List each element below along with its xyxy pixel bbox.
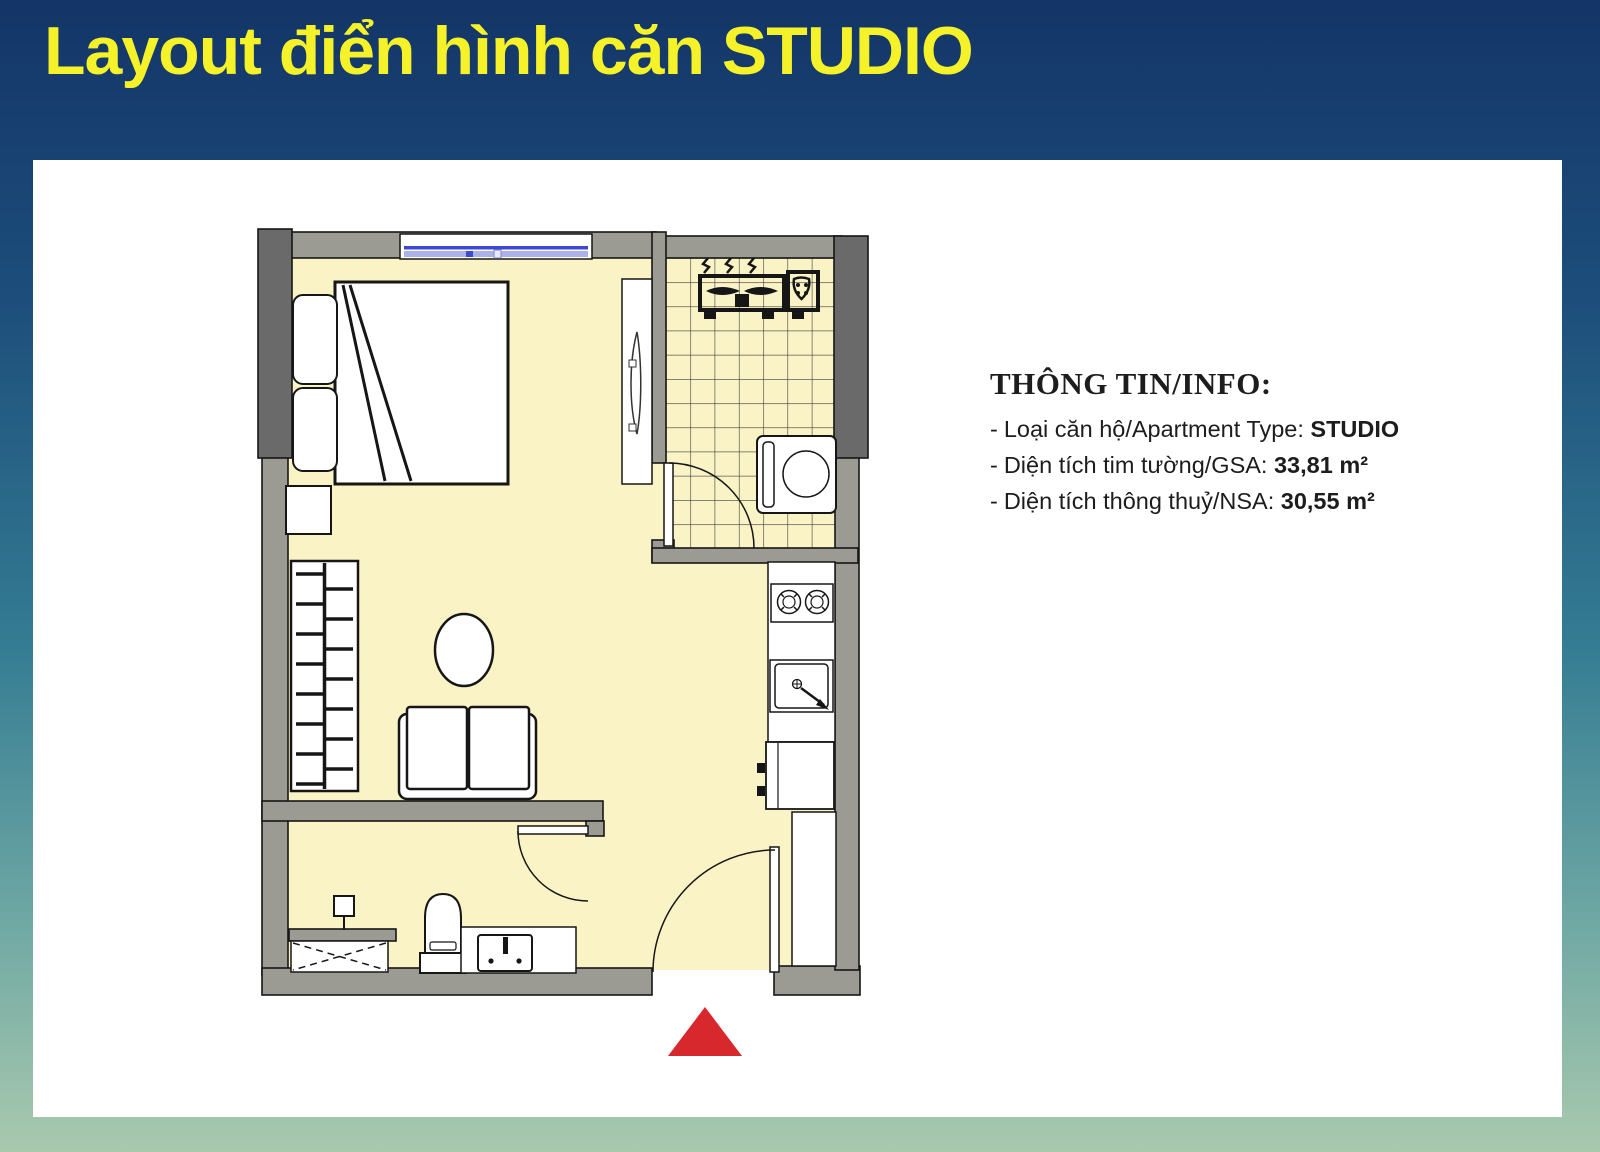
- tv-cabinet: [622, 279, 652, 484]
- round-table: [435, 614, 493, 686]
- sofa: [399, 707, 536, 799]
- entrance-arrow: [668, 1007, 742, 1056]
- bullet-dash: -: [990, 416, 998, 442]
- wardrobe-hangers: [291, 561, 358, 791]
- info-line-apartment-type: -Loại căn hộ/Apartment Type: STUDIO: [990, 411, 1399, 447]
- content-card: THÔNG TIN/INFO: -Loại căn hộ/Apartment T…: [33, 160, 1562, 1117]
- pillow: [293, 295, 337, 384]
- info-value: 30,55 m²: [1281, 488, 1375, 514]
- slide: Layout điển hình căn STUDIO: [0, 0, 1600, 1152]
- refrigerator: [757, 742, 834, 809]
- stove-2-burner: [771, 584, 833, 622]
- info-label: Diện tích thông thuỷ/NSA:: [1004, 488, 1281, 514]
- info-heading: THÔNG TIN/INFO:: [990, 366, 1399, 402]
- shower-head: [334, 896, 354, 916]
- info-label: Loại căn hộ/Apartment Type:: [1004, 416, 1311, 442]
- page-title: Layout điển hình căn STUDIO: [44, 12, 973, 90]
- info-line-gsa: -Diện tích tim tường/GSA: 33,81 m²: [990, 447, 1399, 483]
- info-panel: THÔNG TIN/INFO: -Loại căn hộ/Apartment T…: [990, 366, 1399, 519]
- nightstand: [286, 486, 331, 534]
- bullet-dash: -: [990, 452, 998, 478]
- info-value: STUDIO: [1310, 416, 1399, 442]
- kitchen-counter: [768, 562, 835, 742]
- bullet-dash: -: [990, 488, 998, 514]
- vanity-sink: [461, 927, 576, 973]
- info-label: Diện tích tim tường/GSA:: [1004, 452, 1274, 478]
- floor-plan: [250, 225, 890, 1065]
- info-value: 33,81 m²: [1274, 452, 1368, 478]
- washing-machine: [757, 436, 836, 513]
- window: [400, 234, 592, 259]
- entry-cabinet: [792, 812, 836, 966]
- kitchen-sink: [770, 660, 833, 712]
- pillow: [293, 388, 337, 471]
- toilet: [420, 894, 466, 973]
- info-line-nsa: -Diện tích thông thuỷ/NSA: 30,55 m²: [990, 483, 1399, 519]
